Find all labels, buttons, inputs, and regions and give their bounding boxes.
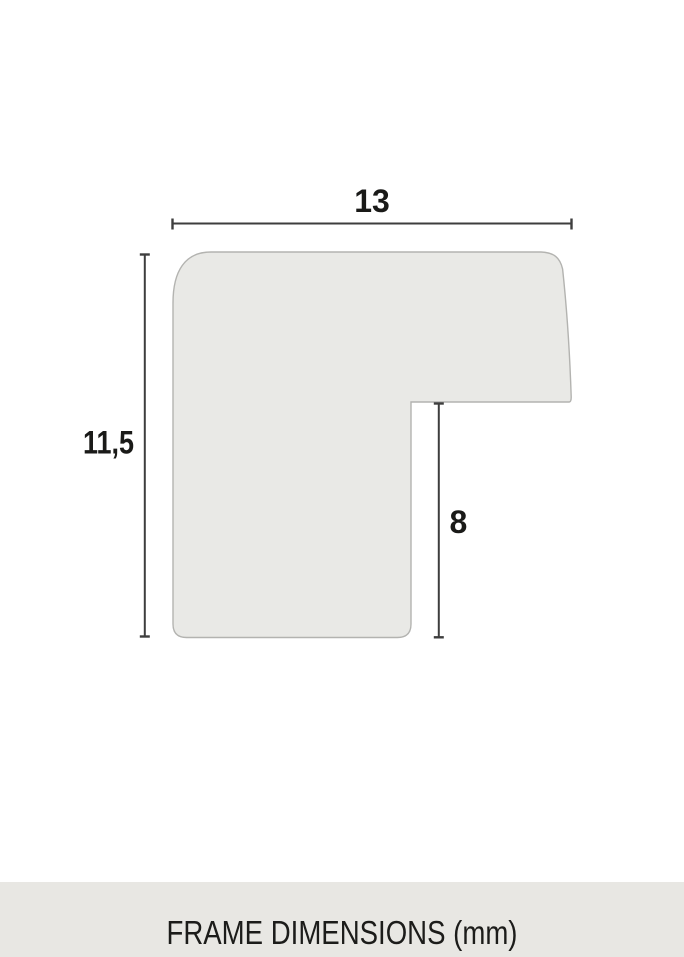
svg-text:FRAME DIMENSIONS (mm): FRAME DIMENSIONS (mm) [167,915,518,952]
svg-text:11,5: 11,5 [83,425,134,461]
svg-text:13: 13 [354,183,390,219]
svg-text:8: 8 [450,504,468,540]
